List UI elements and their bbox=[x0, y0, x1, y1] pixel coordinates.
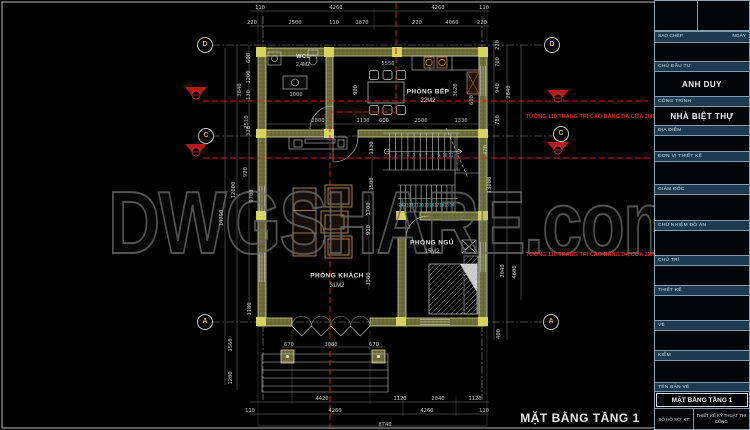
titleblock-row--n-v-thi-t-k-: ĐƠN VỊ THIẾT KẾ bbox=[655, 151, 749, 162]
wc-counter bbox=[283, 76, 307, 89]
tv-cabinet bbox=[289, 137, 347, 149]
titleblock-row-m-t-b-ng-t-ng-1: MẶT BẰNG TẦNG 1 bbox=[655, 392, 749, 408]
titleblock-bar-label: ĐƠN VỊ THIẾT KẾ bbox=[655, 152, 749, 159]
titleblock-row-val bbox=[655, 195, 749, 220]
stove bbox=[424, 57, 447, 68]
titleblock-row-pair2: SỐ HỒ SƠ: KTTHIẾT KẾ KỸ THUẬT THI CÔNG bbox=[655, 408, 749, 429]
titleblock-row-pairbar: SAO CHÉPNGÀY bbox=[655, 31, 749, 43]
titleblock-bar-label: GIÁM ĐỐC bbox=[655, 185, 749, 192]
titleblock-row-ki-m: KIỂM bbox=[655, 350, 749, 361]
titleblock-row-t-n-b-n-v-: TÊN BẢN VẼ bbox=[655, 382, 749, 392]
drawing-title: MẶT BẰNG TẦNG 1 bbox=[500, 411, 660, 425]
watermark: DWGSHARE.com bbox=[108, 172, 686, 274]
toilet-bowl bbox=[309, 55, 317, 65]
titleblock-row-nh-bi-t-th-: NHÀ BIỆT THỰ bbox=[655, 107, 749, 125]
titleblock-row-val bbox=[655, 231, 749, 255]
titleblock-row-thi-t-k-: THIẾT KẾ bbox=[655, 285, 749, 296]
titleblock-row-ch-u-t-: CHỦ ĐẦU TƯ bbox=[655, 61, 749, 72]
titleblock-row-c-ng-tr-nh: CÔNG TRÌNH bbox=[655, 96, 749, 107]
titleblock-cell: THIẾT KẾ KỸ THUẬT THI CÔNG bbox=[694, 409, 749, 429]
titleblock-row-gi-m-c: GIÁM ĐỐC bbox=[655, 184, 749, 195]
titleblock-row-val bbox=[655, 136, 749, 151]
titleblock-bar-label: VẼ bbox=[655, 321, 749, 328]
titleblock-row-val bbox=[655, 331, 749, 350]
titleblock-row--a-i-m: ĐỊA ĐIỂM bbox=[655, 125, 749, 136]
titleblock-row-val bbox=[655, 162, 749, 184]
titleblock-bar-label: CHỦ NHIỆM ĐỒ ÁN bbox=[655, 221, 749, 228]
cad-sheet: DWGSHARE.com WC1 2,4M2 PHÒNG BẾP 22M2 PH… bbox=[0, 0, 750, 430]
titleblock-row-v-: VẼ bbox=[655, 320, 749, 331]
titleblock-bar-label: CÔNG TRÌNH bbox=[655, 97, 749, 104]
titleblock-cell bbox=[698, 1, 749, 30]
section-marker-icon bbox=[185, 87, 207, 100]
titleblock-value: ANH DUY bbox=[682, 80, 722, 89]
titleblock-cell bbox=[655, 1, 698, 30]
titleblock-bar-label: CHỦ ĐẦU TƯ bbox=[655, 62, 749, 69]
titleblock-row-anh-duy: ANH DUY bbox=[655, 72, 749, 96]
titleblock: SAO CHÉPNGÀYCHỦ ĐẦU TƯANH DUYCÔNG TRÌNHN… bbox=[654, 0, 750, 430]
titleblock-bar-label: SAO CHÉP bbox=[655, 32, 686, 42]
section-marker-icon bbox=[547, 142, 569, 155]
stairs-lower bbox=[383, 133, 462, 170]
titleblock-row-val bbox=[655, 43, 749, 61]
wc-fixtures bbox=[268, 50, 333, 129]
titleblock-value: NHÀ BIỆT THỰ bbox=[670, 112, 733, 121]
titleblock-bar-label: CHỦ TRÌ bbox=[655, 256, 749, 263]
titleblock-bar-label: NGÀY bbox=[729, 32, 749, 42]
titleblock-bar-label: ĐỊA ĐIỂM bbox=[655, 126, 749, 133]
titleblock-row-val bbox=[655, 266, 749, 285]
entrance-doors bbox=[292, 316, 370, 336]
hall-door-arc bbox=[333, 137, 358, 162]
titleblock-bar-label: KIỂM bbox=[655, 351, 749, 358]
titleblock-row-split2 bbox=[655, 1, 749, 31]
titleblock-row-val bbox=[655, 361, 749, 382]
dining-table bbox=[368, 71, 406, 115]
titleblock-cell: SỐ HỒ SƠ: KT bbox=[655, 409, 694, 429]
titleblock-bar-label: THIẾT KẾ bbox=[655, 286, 749, 293]
section-marker-icon bbox=[185, 144, 207, 157]
titleblock-drawing-name: MẶT BẰNG TẦNG 1 bbox=[672, 397, 733, 404]
titleblock-row-val bbox=[655, 296, 749, 320]
refrigerator bbox=[467, 72, 479, 94]
section-markers bbox=[185, 87, 569, 157]
titleblock-row-ch-nhi-m-n: CHỦ NHIỆM ĐỒ ÁN bbox=[655, 220, 749, 231]
titleblock-bar-label: TÊN BẢN VẼ bbox=[655, 383, 749, 390]
titleblock-row-ch-tr-: CHỦ TRÌ bbox=[655, 255, 749, 266]
